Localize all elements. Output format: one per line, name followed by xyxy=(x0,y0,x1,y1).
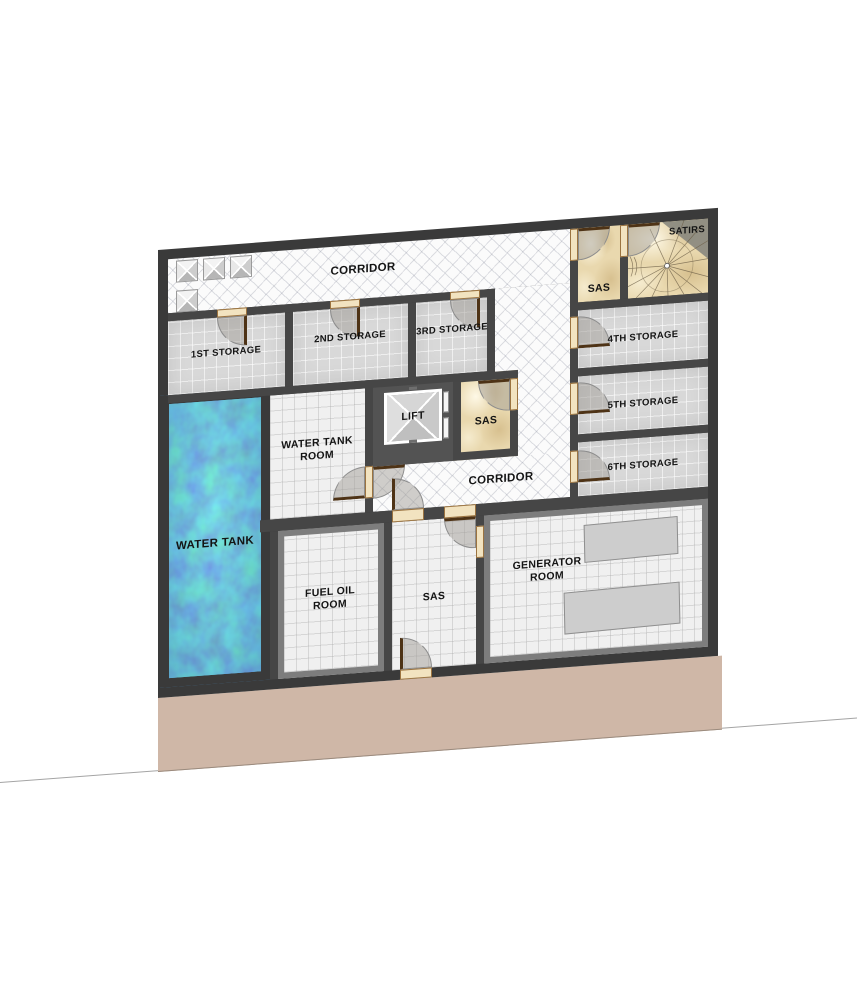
wall xyxy=(384,522,392,671)
column-symbol-icon xyxy=(176,289,198,313)
wall xyxy=(408,303,416,378)
column-symbol-icon xyxy=(203,257,225,281)
door-threshold xyxy=(510,378,518,411)
door-threshold xyxy=(570,382,578,415)
column-symbol-icon xyxy=(176,259,198,283)
door-threshold xyxy=(365,466,373,499)
lift-door-panel xyxy=(443,417,449,438)
door-threshold xyxy=(570,228,578,261)
generator-unit xyxy=(584,516,679,563)
floor-plan-scene: CORRIDOR 1ST STORAGE 2ND STORAGE 3RD STO… xyxy=(0,0,857,1000)
room-water-tank xyxy=(270,388,365,519)
generator-unit xyxy=(564,582,681,635)
door-threshold xyxy=(620,225,628,258)
door-threshold xyxy=(570,450,578,483)
room-fuel-oil xyxy=(278,523,384,679)
lift-car-icon xyxy=(384,389,442,445)
water-tank-pool xyxy=(160,388,270,688)
door-threshold xyxy=(570,316,578,349)
room-generator xyxy=(484,499,708,664)
lift-door-panel xyxy=(443,391,449,412)
building-plan: CORRIDOR 1ST STORAGE 2ND STORAGE 3RD STO… xyxy=(158,208,718,698)
lift-mark xyxy=(409,440,417,444)
column-symbol-icon xyxy=(230,255,252,279)
wall xyxy=(285,312,293,387)
water-tint xyxy=(169,397,261,678)
lift-mark xyxy=(409,387,417,391)
door-threshold xyxy=(392,508,424,522)
wall xyxy=(270,531,278,680)
door-threshold xyxy=(476,525,484,558)
lift-shaft xyxy=(373,375,453,467)
wall xyxy=(487,289,495,373)
